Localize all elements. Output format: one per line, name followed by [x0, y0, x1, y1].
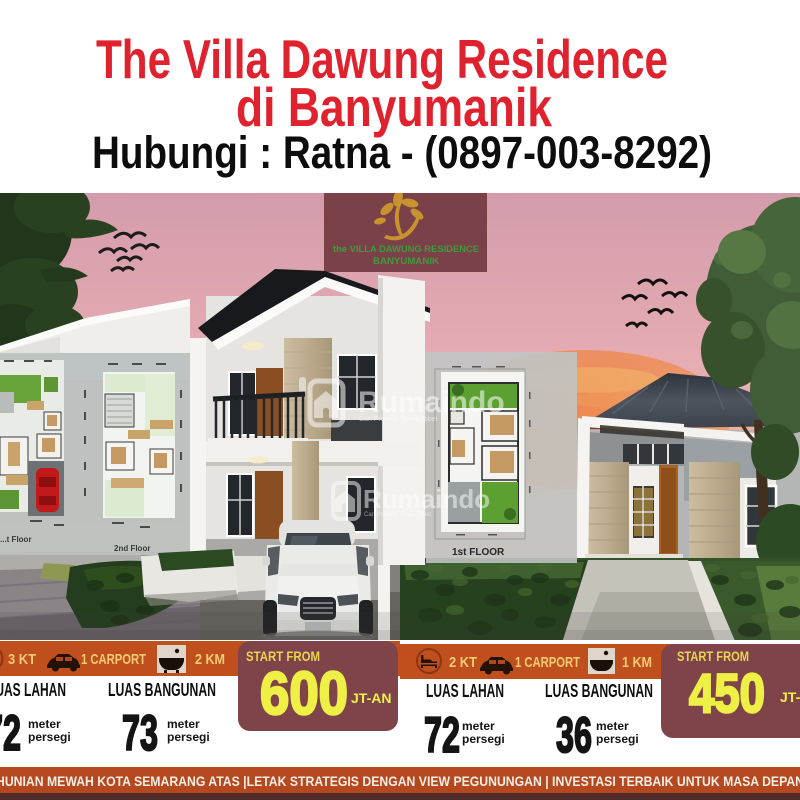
svg-text:JT-: JT-: [780, 689, 800, 705]
svg-text:2 KT: 2 KT: [449, 654, 477, 671]
svg-text:600: 600: [260, 660, 348, 727]
svg-text:LUAS BANGUNAN: LUAS BANGUNAN: [545, 681, 653, 701]
svg-text:36: 36: [556, 707, 592, 763]
svg-text:Rumaindo: Rumaindo: [363, 484, 490, 514]
svg-text:Cari Properti Tanpa Ribet: Cari Properti Tanpa Ribet: [359, 416, 438, 423]
svg-text:meter: meter: [462, 719, 495, 733]
svg-text:Cari Properti Tanpa Ribet: Cari Properti Tanpa Ribet: [364, 512, 432, 518]
svg-text:JT-AN: JT-AN: [351, 690, 391, 706]
svg-text:persegi: persegi: [462, 732, 505, 746]
svg-text:HUNIAN MEWAH KOTA SEMARANG ATA: HUNIAN MEWAH KOTA SEMARANG ATAS |LETAK S…: [0, 773, 800, 789]
svg-text:persegi: persegi: [596, 732, 639, 746]
svg-text:meter: meter: [596, 719, 629, 733]
svg-text:the VILLA DAWUNG RESIDENCE: the VILLA DAWUNG RESIDENCE: [333, 244, 479, 254]
svg-text:2 KM: 2 KM: [195, 651, 225, 668]
svg-text:Hubungi : Ratna - (0897-003-82: Hubungi : Ratna - (0897-003-8292): [92, 127, 712, 178]
svg-text:1 CARPORT: 1 CARPORT: [81, 651, 146, 668]
svg-text:LUAS LAHAN: LUAS LAHAN: [426, 681, 504, 701]
svg-text:72: 72: [0, 705, 21, 761]
svg-text:72: 72: [424, 707, 460, 763]
svg-text:persegi: persegi: [28, 730, 71, 744]
svg-text:1st FLOOR: 1st FLOOR: [452, 547, 505, 558]
svg-text:2nd Floor: 2nd Floor: [114, 544, 150, 553]
svg-text:...t Floor: ...t Floor: [0, 535, 32, 544]
svg-text:BANYUMANIK: BANYUMANIK: [373, 256, 440, 266]
svg-text:LUAS LAHAN: LUAS LAHAN: [0, 680, 66, 700]
svg-text:3 KT: 3 KT: [8, 651, 36, 668]
svg-text:1 KM: 1 KM: [622, 654, 652, 671]
svg-text:1 CARPORT: 1 CARPORT: [515, 654, 580, 671]
svg-text:LUAS BANGUNAN: LUAS BANGUNAN: [108, 680, 216, 700]
svg-text:450: 450: [689, 662, 765, 724]
svg-text:Rumaindo: Rumaindo: [358, 386, 505, 419]
svg-text:meter: meter: [167, 717, 200, 731]
svg-text:meter: meter: [28, 717, 61, 731]
svg-text:persegi: persegi: [167, 730, 210, 744]
svg-text:73: 73: [122, 705, 158, 761]
